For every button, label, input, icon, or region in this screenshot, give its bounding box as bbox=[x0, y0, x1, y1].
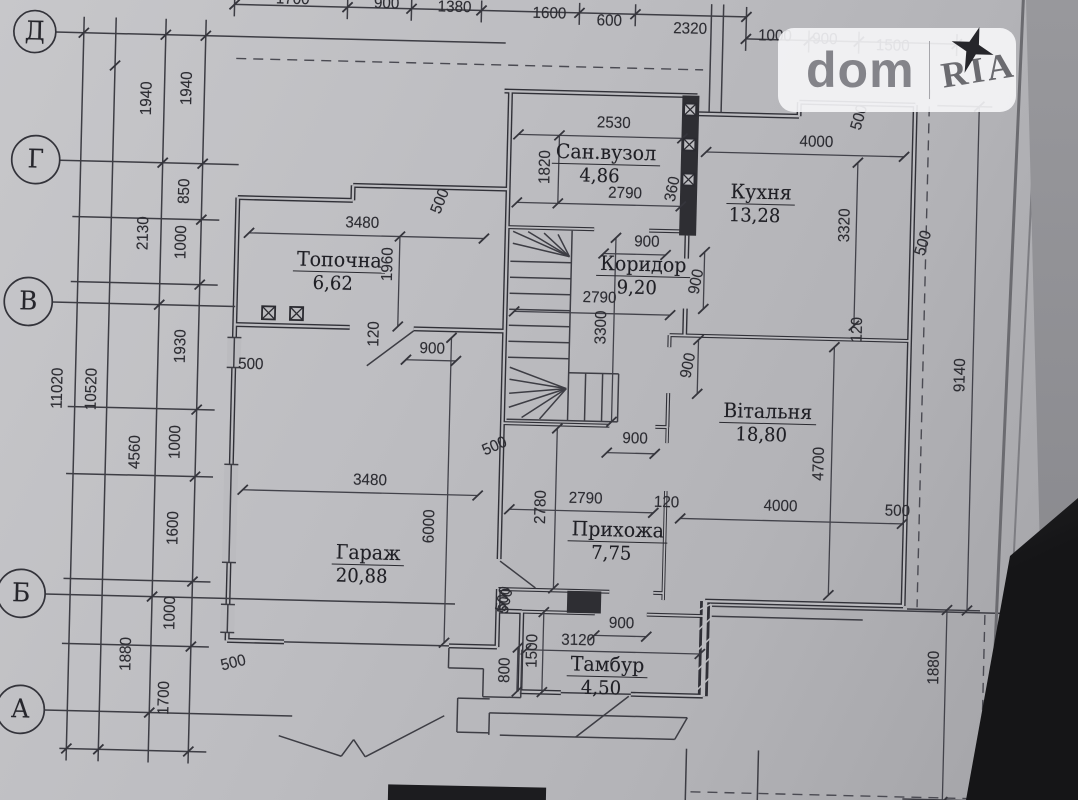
dimension-label: 3480 bbox=[353, 472, 387, 489]
room-name-label: Тамбур bbox=[567, 653, 649, 678]
dimension-label: 3120 bbox=[561, 633, 595, 650]
star-icon bbox=[950, 26, 994, 74]
photo-dark-strip bbox=[388, 784, 546, 800]
dimension-label: 1000 bbox=[173, 225, 190, 259]
dimension-label: 1000 bbox=[162, 596, 179, 630]
dimension-label: 1700 bbox=[276, 0, 310, 8]
dimension-label: 2790 bbox=[568, 491, 602, 508]
room-area-label: 9,20 bbox=[616, 278, 657, 298]
dimension-label: 9140 bbox=[952, 358, 969, 392]
dimension-label: 1940 bbox=[139, 81, 156, 115]
dimension-label: 6000 bbox=[421, 509, 438, 543]
dimension-label: 1600 bbox=[165, 511, 182, 545]
dimension-label: 3480 bbox=[345, 215, 379, 232]
dimension-label: 900 bbox=[374, 0, 400, 12]
room-name-label: Топочна bbox=[293, 248, 386, 273]
dimension-label: 2530 bbox=[597, 115, 631, 132]
dimension-label: 500 bbox=[238, 357, 264, 374]
dimension-label: 4700 bbox=[811, 447, 828, 481]
dimension-label: 850 bbox=[177, 178, 194, 204]
interior-lines bbox=[37, 0, 1021, 800]
dimension-label: 2790 bbox=[582, 290, 616, 307]
dimension-label: 1880 bbox=[118, 637, 135, 671]
dimension-label: 11020 bbox=[50, 367, 67, 409]
floor-plan: ДГВБА11020105201940213045601880194085010… bbox=[0, 0, 1078, 800]
dimension-label: 900 bbox=[419, 341, 445, 358]
dimension-label: 1940 bbox=[179, 71, 196, 105]
dimension-label: 1880 bbox=[926, 651, 943, 685]
dimension-label: 120 bbox=[654, 495, 680, 512]
dimension-label: 3320 bbox=[837, 208, 854, 242]
dimension-label: 2320 bbox=[673, 21, 707, 38]
room-area-label: 13,28 bbox=[728, 206, 780, 226]
dimension-label: 4000 bbox=[763, 498, 797, 515]
dimension-label: 2130 bbox=[136, 216, 153, 250]
dimension-label: 120 bbox=[850, 317, 867, 343]
dimension-label: 800 bbox=[497, 657, 514, 683]
axis-letter-0: Д bbox=[24, 18, 45, 44]
dimension-label: 900 bbox=[622, 431, 648, 448]
dimension-label: 120 bbox=[366, 321, 383, 347]
dimension-label: 4000 bbox=[799, 134, 833, 151]
room-name-label: Сан.вузол bbox=[552, 141, 660, 167]
watermark-badge: dom RIA bbox=[778, 28, 1016, 112]
dimension-ticks bbox=[60, 0, 986, 800]
dimension-label: 2790 bbox=[608, 186, 642, 203]
dimension-label: 1700 bbox=[156, 681, 173, 715]
dimension-label: 900 bbox=[634, 234, 660, 251]
room-name-label: Коридор bbox=[596, 253, 690, 278]
room-name-label: Кухня bbox=[726, 181, 795, 206]
room-area-label: 4,50 bbox=[581, 679, 622, 699]
dimension-label: 1600 bbox=[532, 6, 566, 23]
watermark-brand-dom: dom bbox=[806, 41, 915, 99]
axis-letter-1: Г bbox=[27, 146, 44, 172]
axis-letter-4: А bbox=[11, 696, 30, 722]
dimension-label: 600 bbox=[596, 13, 622, 30]
room-area-label: 18,80 bbox=[735, 425, 787, 445]
room-name-label: Вітальня bbox=[719, 400, 816, 425]
dimension-label: 1930 bbox=[173, 329, 190, 363]
dimension-label: 4560 bbox=[127, 435, 144, 469]
dimension-label: 900 bbox=[609, 616, 635, 633]
dimension-label: 1500 bbox=[524, 634, 541, 668]
dimension-label: 1380 bbox=[437, 0, 471, 16]
dimension-label: 500 bbox=[885, 503, 911, 520]
dimension-label: 10520 bbox=[84, 368, 101, 411]
room-area-label: 4,86 bbox=[579, 166, 620, 186]
axis-letter-3: Б bbox=[12, 580, 31, 606]
dimension-label: 2780 bbox=[533, 490, 550, 524]
room-area-label: 20,88 bbox=[336, 567, 388, 587]
dimension-label: 1000 bbox=[167, 425, 184, 459]
axis-letter-2: В bbox=[19, 288, 38, 314]
room-area-label: 6,62 bbox=[312, 274, 353, 294]
scanned-floorplan-photo: ДГВБА11020105201940213045601880194085010… bbox=[0, 0, 1078, 800]
room-name-label: Прихожа bbox=[568, 518, 668, 543]
room-name-label: Гараж bbox=[332, 541, 405, 566]
dimension-label: 3300 bbox=[593, 310, 610, 344]
room-area-label: 7,75 bbox=[591, 544, 632, 564]
